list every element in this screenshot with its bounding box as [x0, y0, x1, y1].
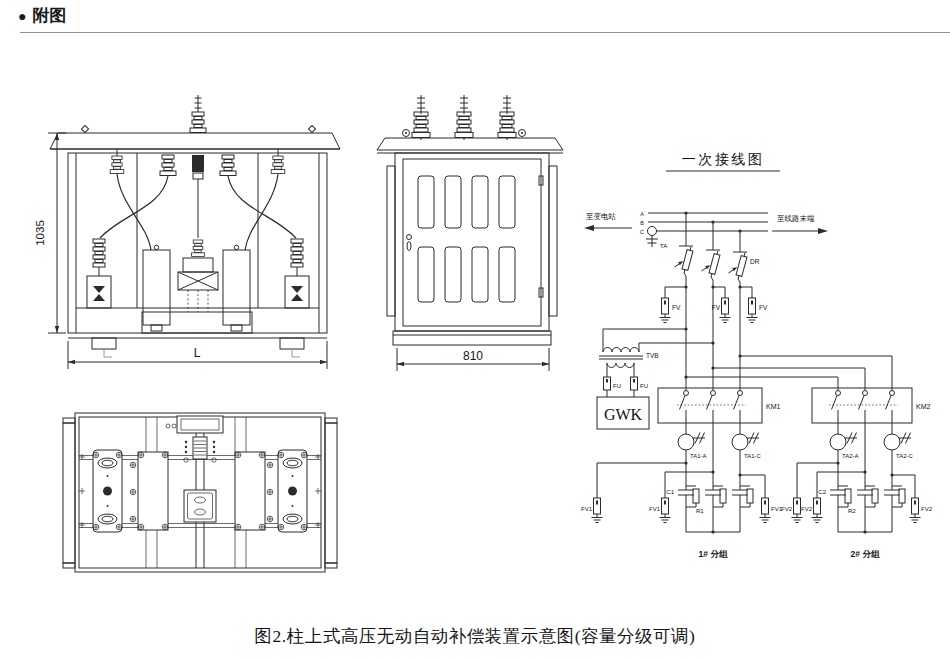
- tvb-transformer: TVB FU FU: [599, 327, 715, 397]
- fv2-label-3: FV2: [921, 506, 933, 512]
- group2-label: 2# 分组: [851, 549, 880, 559]
- side-louvers: [418, 176, 515, 302]
- fv1-label-1: FV1: [581, 506, 593, 512]
- km2-feeders: [684, 354, 892, 390]
- side-width-dimension: 810: [397, 348, 549, 371]
- side-width-dim-label: 810: [463, 349, 483, 363]
- front-mid-bushing-left: [160, 155, 176, 176]
- bus-current-transformer: TA: [646, 227, 667, 250]
- gwk-controller: GWK: [597, 397, 649, 429]
- top-capacitor-unit-left: [93, 450, 168, 532]
- ta2a-label: TA2-A: [842, 453, 859, 459]
- tvb-label: TVB: [646, 352, 659, 359]
- front-roof: [50, 125, 340, 149]
- side-bushing-2: [455, 95, 473, 140]
- dr-label: DR: [750, 258, 760, 265]
- height-dim-label: 1035: [34, 220, 46, 246]
- page-header: ● 附图: [18, 4, 66, 27]
- to-line-end: 至线路末端: [772, 214, 828, 234]
- fv2-label-1: FV2: [781, 506, 793, 512]
- to-line-end-label: 至线路末端: [777, 214, 815, 223]
- front-center-bushing: [190, 95, 206, 238]
- fu-label-2: FU: [640, 383, 648, 389]
- side-roof: [377, 130, 563, 154]
- side-bushing-3: [498, 95, 516, 140]
- page-title: 附图: [32, 4, 66, 27]
- phase-b-label: B: [640, 220, 644, 226]
- front-arrester-right: [285, 239, 309, 308]
- front-capacitor-right: [223, 245, 250, 331]
- fv-label-1: FV: [672, 304, 681, 311]
- km1-label: KM1: [766, 403, 781, 410]
- width-dimension: L: [68, 341, 327, 369]
- front-center-component: [142, 240, 252, 333]
- ta1c-label: TA1-C: [744, 453, 762, 459]
- to-substation-label: 至变电站: [586, 212, 617, 221]
- ta2c-label: TA2-C: [896, 453, 914, 459]
- line-arresters: FV FV FV: [660, 285, 768, 322]
- figure-caption: 图2.柱上式高压无动自动补偿装置示意图(容量分级可调): [0, 624, 950, 648]
- header-divider: [20, 32, 950, 33]
- bullet-icon: ●: [18, 9, 26, 23]
- door-handle: [407, 235, 412, 240]
- top-capacitor-unit-right: [235, 450, 307, 532]
- bus-lines: A B C: [640, 211, 768, 235]
- group1-label: 1# 分组: [699, 549, 728, 559]
- r1-label: R1: [696, 508, 704, 514]
- r2-label: R2: [848, 508, 856, 514]
- side-view-drawing: 810: [370, 88, 575, 373]
- ta-label: TA: [660, 243, 667, 249]
- km1-contactor: KM1: [658, 388, 781, 423]
- fv-label-2: FV: [712, 304, 721, 311]
- gwk-label: GWK: [604, 406, 643, 423]
- c1-label: C1: [666, 489, 674, 495]
- front-view-drawing: 1035: [25, 85, 355, 380]
- front-arrester-left: [87, 239, 111, 308]
- phase-c-label: C: [640, 229, 644, 235]
- side-bushing-1: [412, 95, 430, 140]
- fv-label-3: FV: [759, 304, 768, 311]
- c2-label: C2: [818, 489, 826, 495]
- schematic-drawing: 一次接线图 至变电站 至线路末端 A B C TA: [578, 140, 950, 580]
- ta1a-label: TA1-A: [690, 453, 707, 459]
- fv1-label-2: FV1: [649, 506, 661, 512]
- fv2-label-2: FV2: [801, 506, 813, 512]
- fu-label-1: FU: [613, 383, 621, 389]
- km2-label: KM2: [916, 403, 931, 410]
- capacitor-group-2: FV2 FV2 FV2 C2 R2 2# 分组: [781, 461, 933, 559]
- width-dim-label: L: [194, 346, 201, 360]
- top-view-drawing: [55, 395, 350, 590]
- page: ● 附图 1035: [0, 0, 950, 660]
- km2-contactor: KM2: [812, 388, 931, 423]
- height-dimension: 1035: [34, 133, 66, 333]
- capacitor-group-1: FV1 FV1 FV1 C1 R1 1# 分组: [581, 461, 783, 559]
- schematic-title: 一次接线图: [682, 151, 765, 167]
- group-current-transformers: TA1-A TA1-C TA2-A TA2-C: [678, 410, 914, 475]
- dropout-fuses: DR: [675, 211, 760, 390]
- front-capacitor-left: [143, 245, 170, 331]
- to-substation: 至变电站: [584, 212, 632, 231]
- front-mid-bushing-right: [220, 155, 236, 176]
- phase-a-label: A: [640, 211, 644, 217]
- top-center-column: [166, 416, 223, 568]
